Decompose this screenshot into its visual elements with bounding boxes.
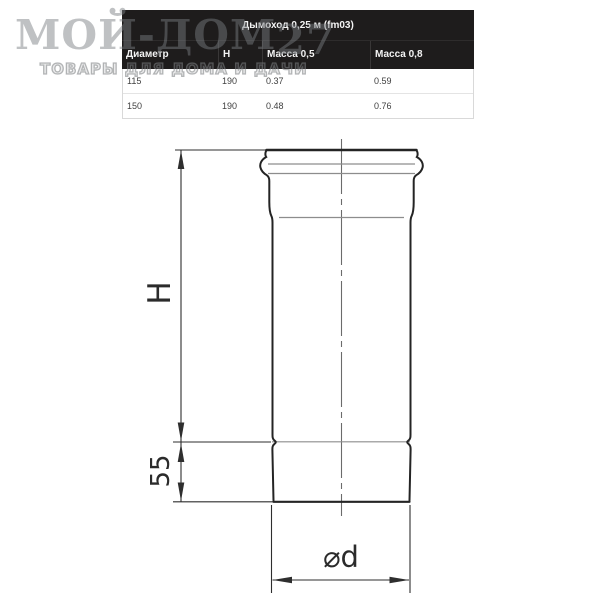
arrow-diameter-left [273, 577, 293, 583]
arrow-55-top [178, 444, 185, 463]
product-image: { "watermark": { "brand": "МОЙ-ДОМ", "br… [0, 0, 600, 600]
label-55: 55 [146, 454, 176, 487]
pipe-left-profile [260, 150, 276, 501]
label-diameter-d: ⌀d [323, 540, 359, 574]
label-height-h: H [142, 281, 178, 304]
arrow-55-bottom [178, 483, 185, 502]
dimension-arrows [178, 151, 409, 584]
arrow-h-top [178, 151, 185, 170]
extension-lines [173, 150, 410, 593]
pipe-technical-drawing: H 55 ⌀d [0, 0, 600, 600]
pipe-right-profile [407, 150, 423, 501]
arrow-diameter-right [390, 577, 410, 583]
dimension-lines [181, 150, 409, 580]
arrow-h-bottom [178, 423, 185, 442]
